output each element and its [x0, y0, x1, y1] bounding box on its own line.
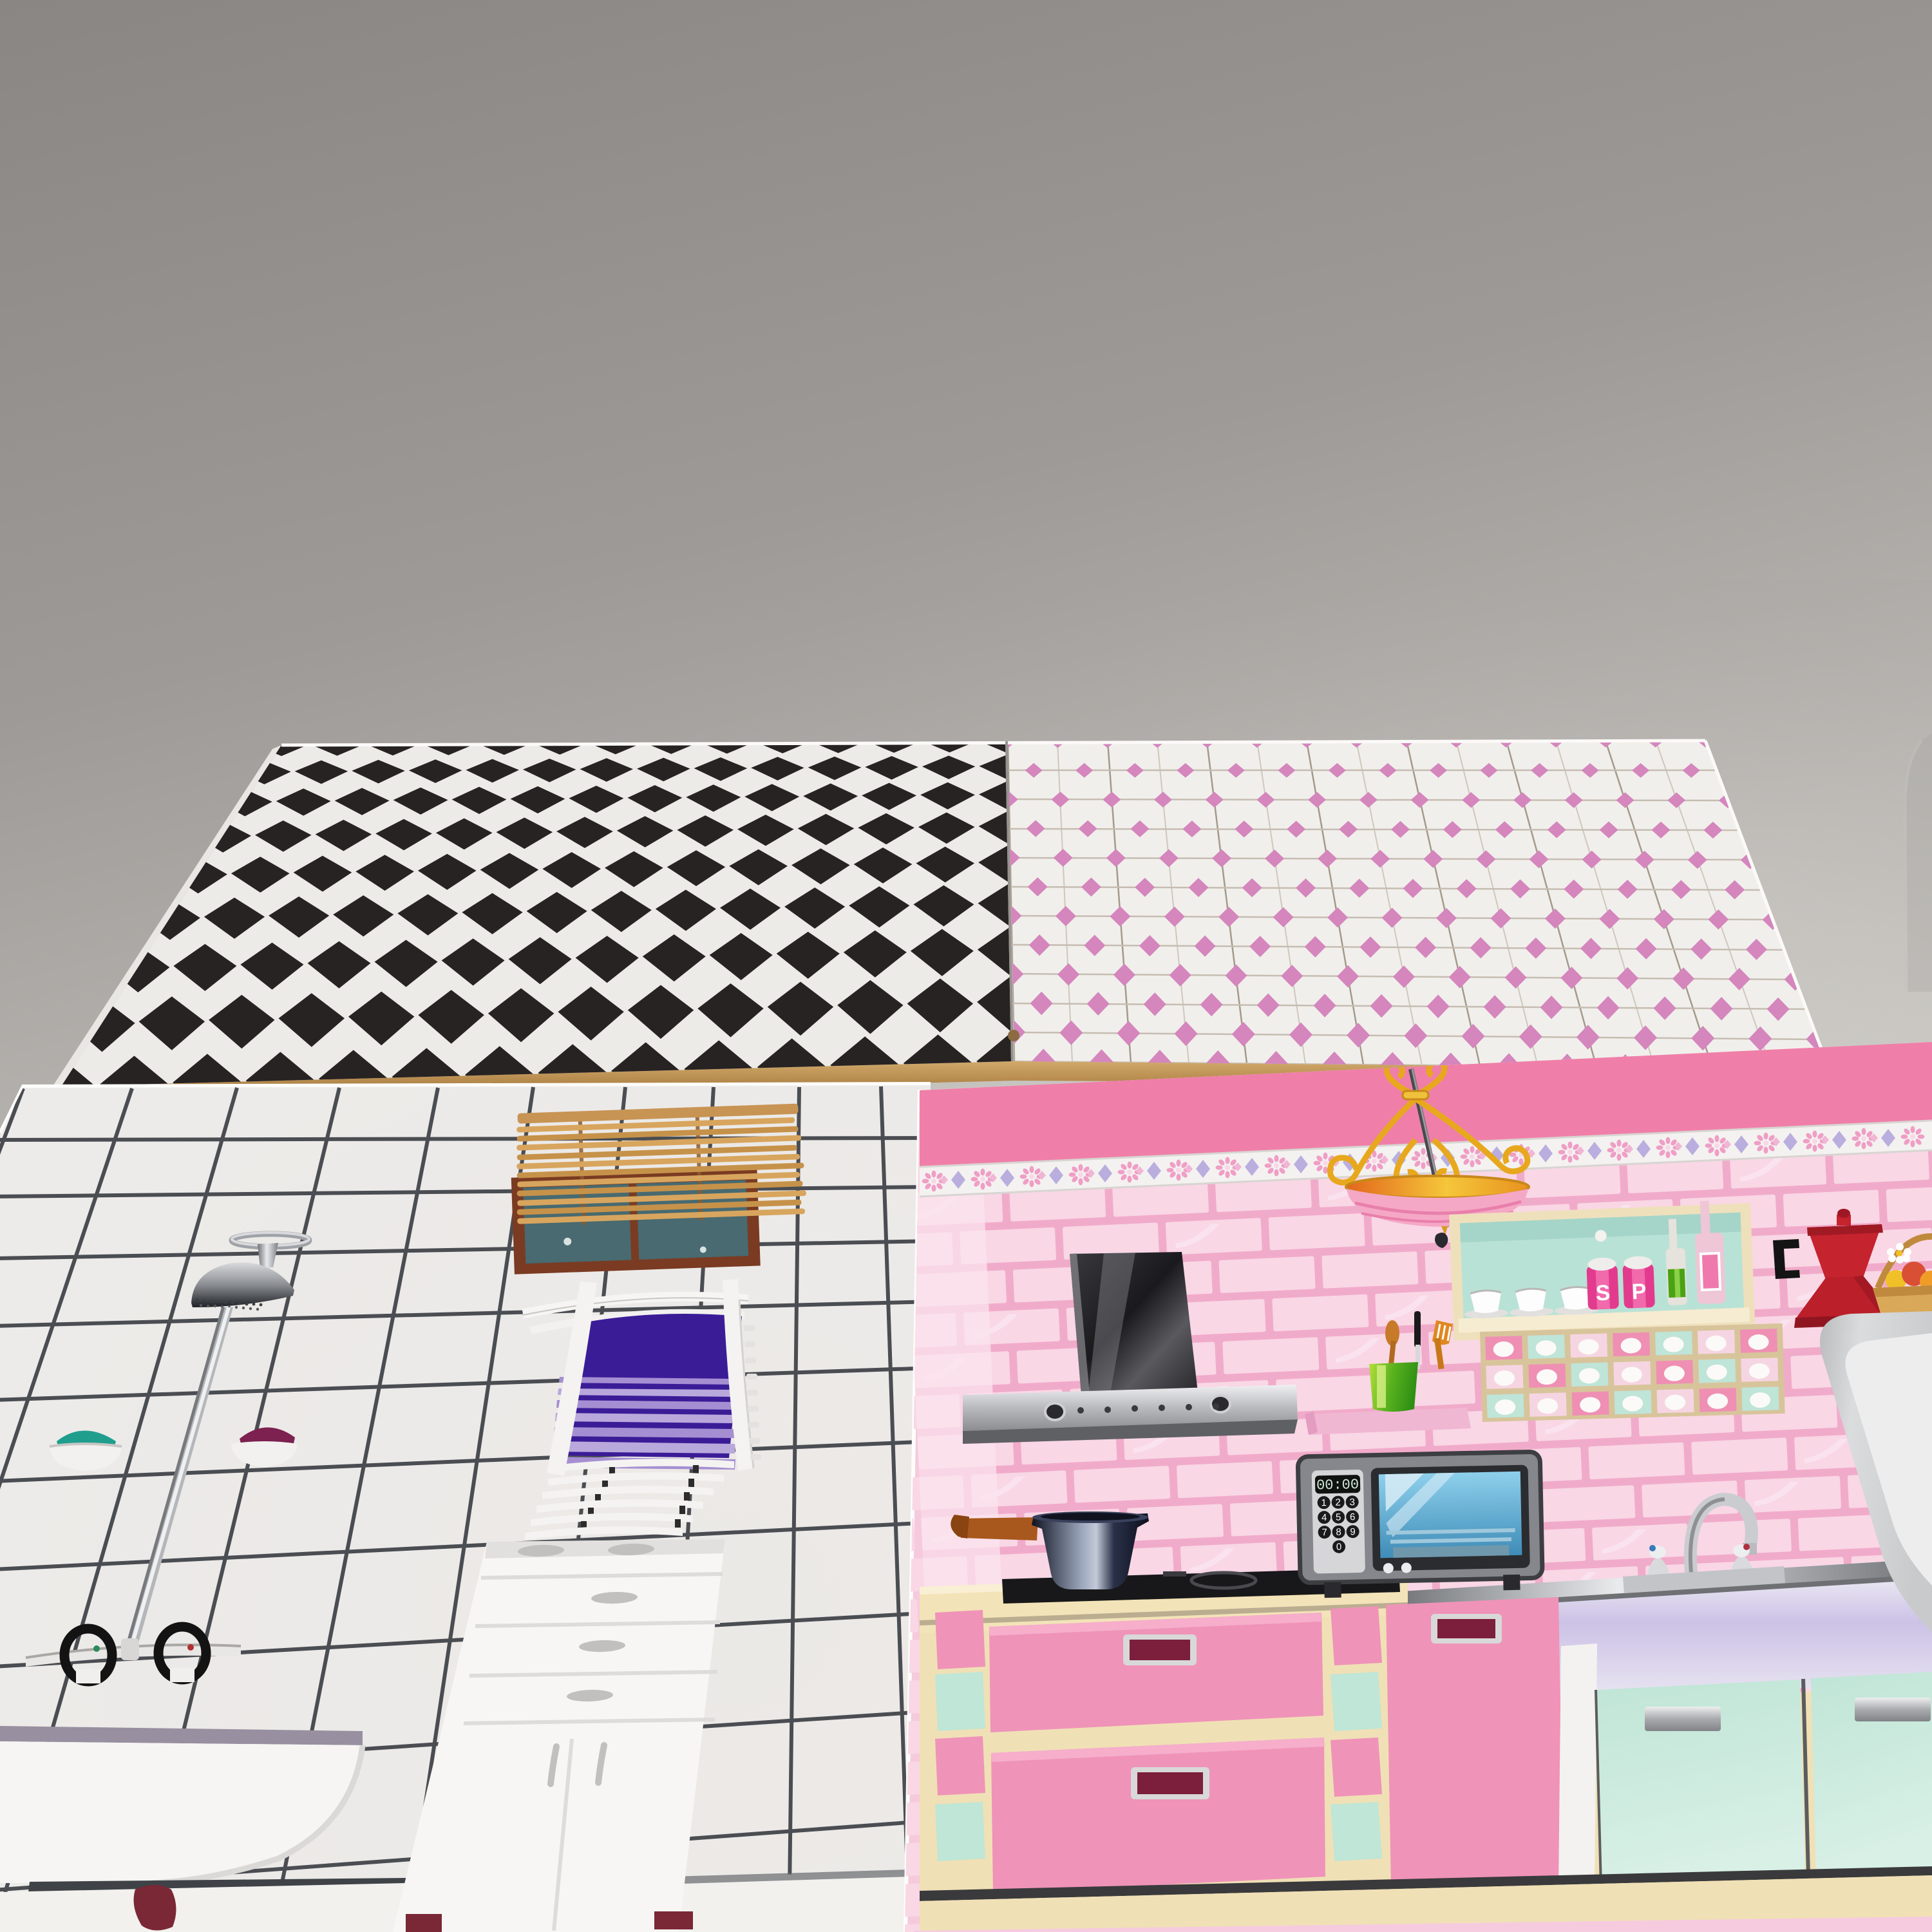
svg-text:9: 9: [1350, 1526, 1356, 1537]
svg-text:6: 6: [1350, 1511, 1356, 1522]
svg-text:2: 2: [1335, 1497, 1341, 1508]
svg-text:5: 5: [1336, 1512, 1341, 1523]
svg-text:7: 7: [1321, 1527, 1327, 1538]
svg-text:0: 0: [1336, 1542, 1342, 1553]
svg-text:3: 3: [1349, 1497, 1355, 1508]
svg-text:4: 4: [1321, 1512, 1327, 1523]
svg-text:P: P: [1631, 1279, 1647, 1304]
svg-text:8: 8: [1336, 1527, 1341, 1538]
svg-text:S: S: [1595, 1280, 1611, 1305]
svg-text:1: 1: [1321, 1497, 1327, 1508]
svg-text:00:00: 00:00: [1316, 1477, 1359, 1493]
